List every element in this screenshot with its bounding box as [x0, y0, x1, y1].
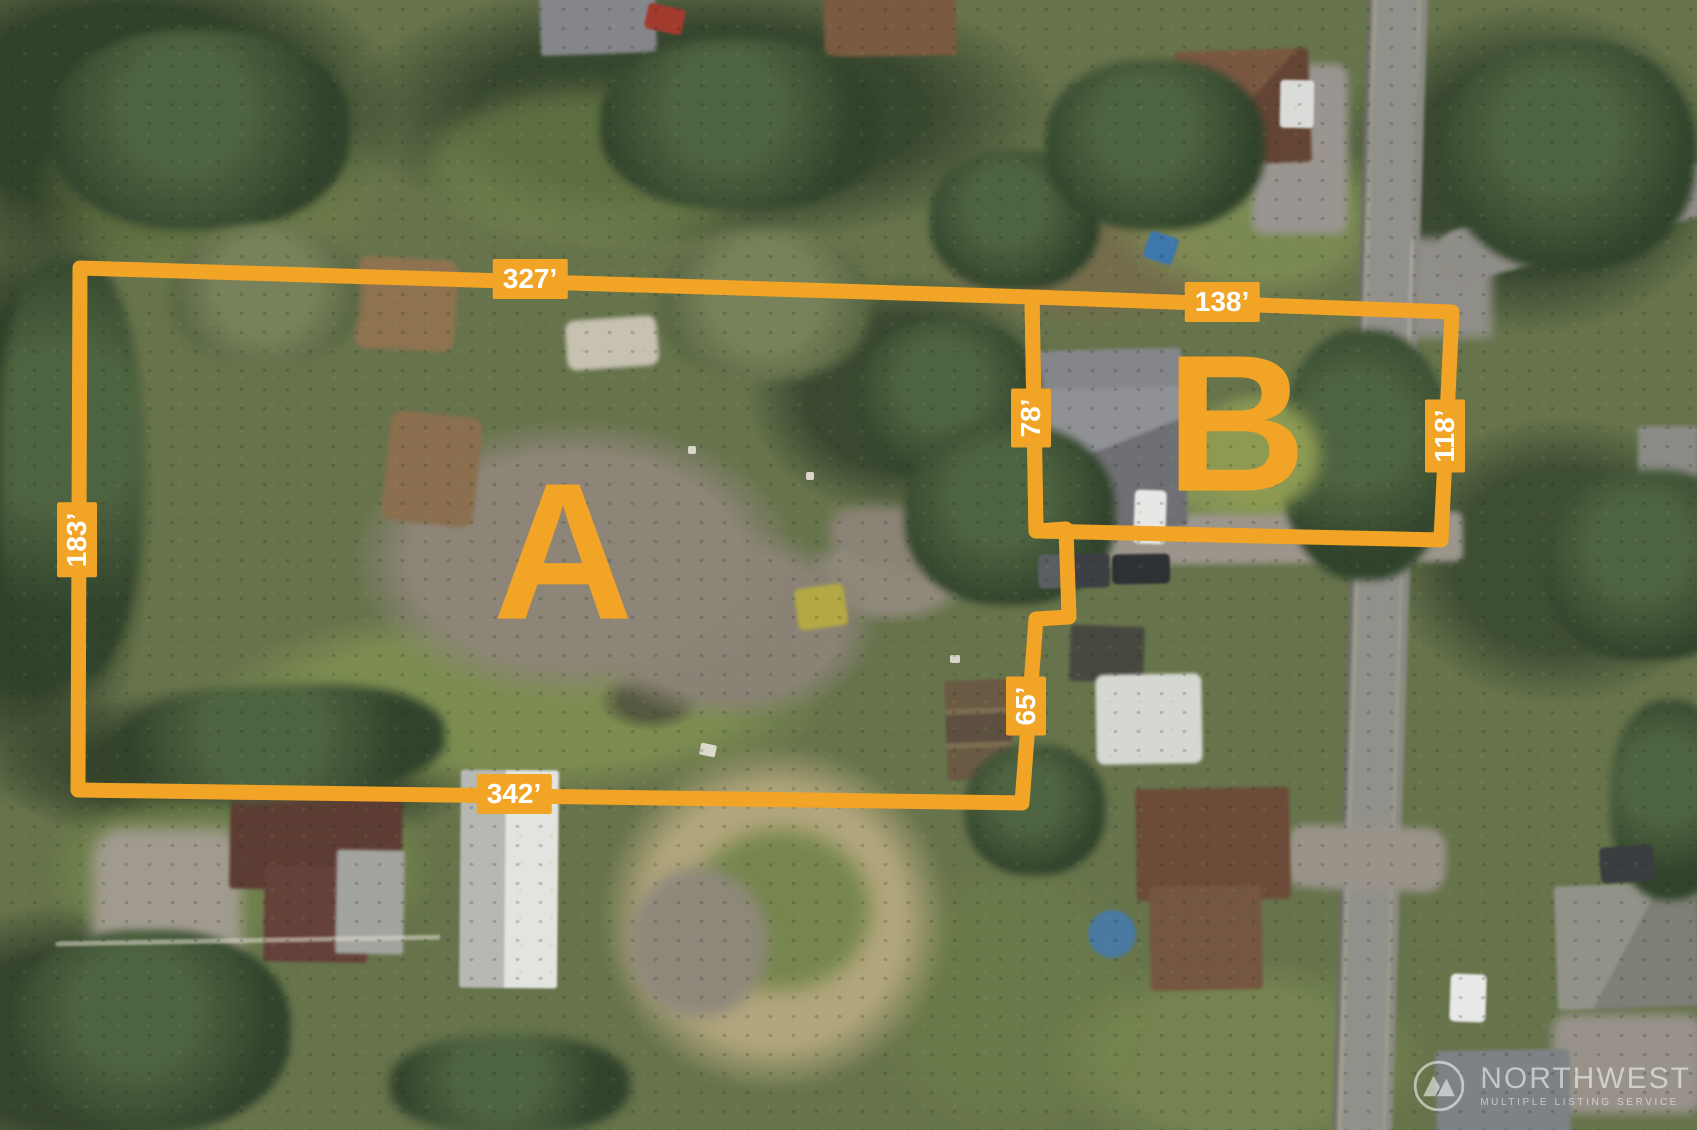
greenhouse-white [1095, 673, 1203, 765]
trailer-yellow [793, 583, 848, 632]
aerial-photo [0, 0, 1697, 1130]
house-roof-br-wing [1149, 885, 1263, 991]
tree-leafy [660, 230, 870, 380]
tree-leafy [170, 225, 360, 365]
dirt-mound [628, 868, 768, 1018]
van-dark [1038, 553, 1111, 588]
paper-white [699, 742, 717, 757]
aerial-parcel-screenshot: A327’183’78’65’342’B138’118’ NORTHWEST M… [0, 0, 1697, 1130]
house-roof-top-gray [539, 0, 657, 56]
car-dark-right [1599, 844, 1655, 884]
tarp-blue [1142, 230, 1179, 266]
tree-cluster [50, 30, 350, 230]
tree-cluster [1545, 470, 1697, 660]
watermark-subtitle: MULTIPLE LISTING SERVICE [1480, 1097, 1691, 1109]
log-pile [354, 255, 459, 352]
mls-watermark: NORTHWEST MULTIPLE LISTING SERVICE [1411, 1058, 1691, 1114]
tree-cluster [1045, 60, 1265, 230]
driveway-bottom-right [1285, 823, 1447, 893]
tree-cluster [10, 930, 290, 1130]
van-white-topright [1280, 80, 1315, 129]
car-white-parcel-b [1133, 489, 1167, 544]
tree-cluster [965, 745, 1105, 875]
log-pile [381, 409, 484, 528]
tree-cluster [390, 1035, 630, 1130]
debris-pile-white [564, 315, 659, 371]
watermark-text: NORTHWEST MULTIPLE LISTING SERVICE [1480, 1063, 1691, 1110]
shed-white-gable [459, 770, 559, 989]
house-roof-top-brown [823, 0, 956, 57]
white-speck [950, 655, 960, 663]
trampoline-blue [1088, 910, 1136, 958]
tree-cluster [1445, 40, 1695, 270]
mountain-logo-icon [1411, 1058, 1467, 1114]
car-dark [1112, 553, 1171, 584]
tree-cluster [600, 40, 880, 210]
watermark-title: NORTHWEST [1480, 1063, 1691, 1095]
white-speck [806, 472, 814, 480]
house-roof-br-main [1135, 787, 1291, 902]
tree-moss [1200, 400, 1320, 510]
house-roof-corner-gray [1554, 882, 1697, 1011]
car-white-road [1449, 973, 1487, 1022]
tree-strip-left [0, 260, 140, 680]
white-speck [688, 446, 696, 454]
